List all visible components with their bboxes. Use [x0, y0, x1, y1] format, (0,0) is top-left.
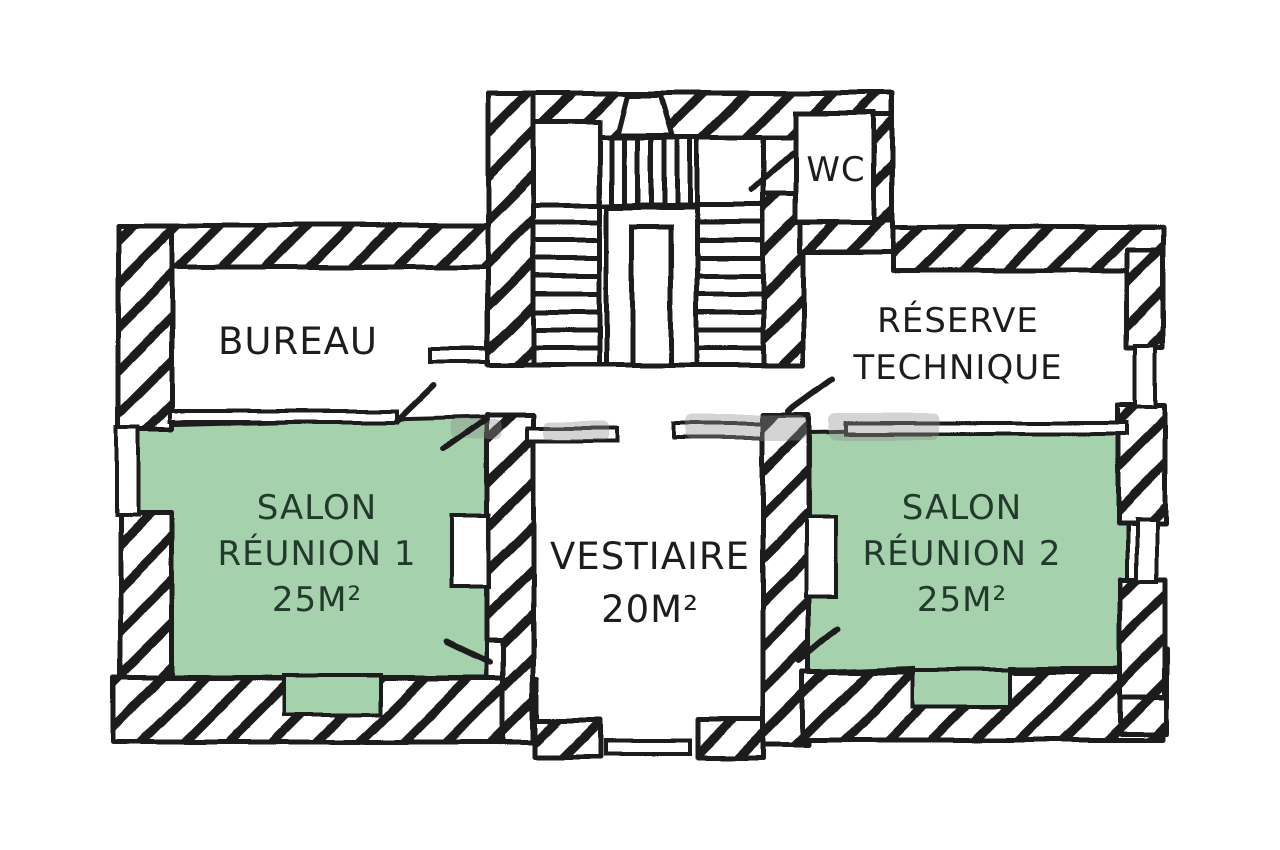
- wall-bureau-salon1: [170, 411, 397, 422]
- label-salon2-area: 25M²: [917, 580, 1007, 620]
- label-vestiaire-area: 20M²: [601, 588, 699, 631]
- label-salon2-line2: RÉUNION 2: [862, 533, 1061, 574]
- recess-salon1-door: [285, 675, 380, 714]
- wall-entrance-left-block: [535, 720, 600, 757]
- floor-plan-canvas: BUREAU WC RÉSERVE TECHNIQUE SALON RÉUNIO…: [0, 0, 1280, 850]
- stair-landing: [533, 122, 600, 205]
- wall-right-upper: [1127, 250, 1163, 347]
- pilaster-salon2: [806, 518, 836, 596]
- entrance-threshold: [605, 741, 690, 754]
- label-reserve-line2: TECHNIQUE: [852, 348, 1062, 388]
- stair-band-trapezoid: [618, 95, 672, 135]
- stairs: [533, 122, 763, 365]
- wall-top-right-band: [893, 227, 1163, 271]
- pilaster-salon1: [452, 515, 489, 587]
- stair-right-flight: [697, 205, 763, 365]
- corridor-threshold: [430, 349, 488, 362]
- window-right-wall-upper: [1136, 345, 1156, 407]
- wall-right-lower: [1120, 580, 1165, 697]
- bureau-door-leaf: [397, 386, 433, 421]
- stair-upper-flight-treads: [612, 139, 690, 203]
- label-wc: WC: [806, 150, 865, 190]
- label-bureau: BUREAU: [218, 320, 378, 363]
- window-left-wall: [116, 428, 138, 515]
- watermark-fragment: [828, 413, 940, 440]
- label-reserve-line1: RÉSERVE: [877, 300, 1039, 341]
- label-vestiaire: VESTIAIRE: [550, 535, 750, 578]
- label-salon1-line1: SALON: [257, 488, 377, 528]
- wall-stair-left: [488, 93, 533, 365]
- reserve-door-leaf: [789, 379, 833, 411]
- stair-core: [607, 207, 697, 365]
- wall-left-lower: [120, 513, 172, 690]
- window-right-wall-lower: [1136, 519, 1156, 582]
- label-salon1-area: 25M²: [272, 580, 362, 620]
- recess-salon2-door: [913, 670, 1010, 706]
- watermark-fragment: [543, 421, 609, 440]
- label-salon2-line1: SALON: [902, 488, 1022, 528]
- stair-left-flight: [533, 205, 600, 365]
- label-salon1-line2: RÉUNION 1: [217, 533, 416, 574]
- floor-plan: [113, 93, 1167, 758]
- wall-left-upper: [118, 225, 172, 430]
- wall-entrance-right-block: [698, 720, 763, 758]
- watermark-fragment: [685, 415, 807, 440]
